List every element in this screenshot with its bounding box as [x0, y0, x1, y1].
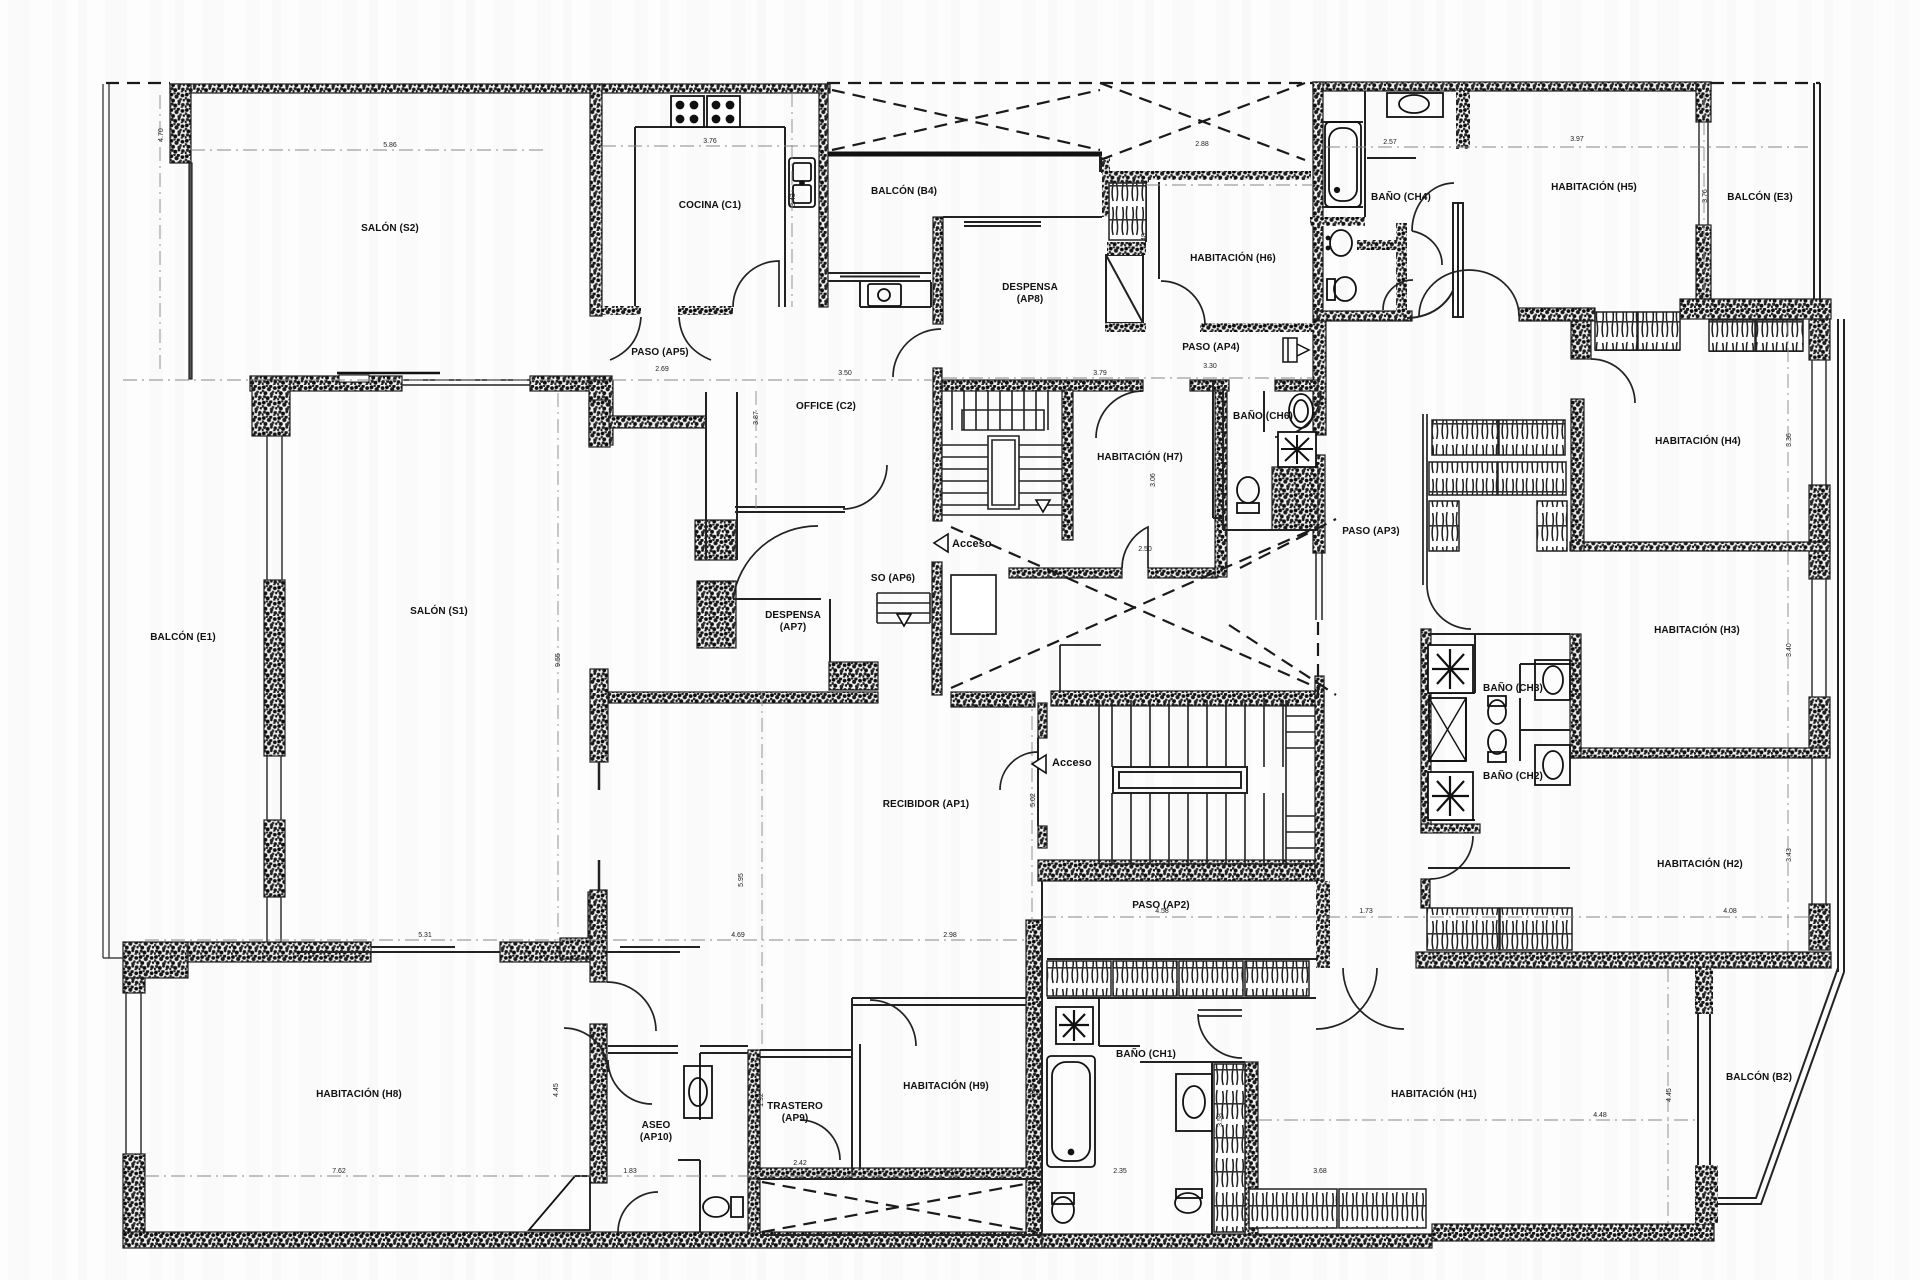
svg-text:4.69: 4.69 — [731, 932, 745, 939]
svg-text:HABITACIÓN (H1): HABITACIÓN (H1) — [1391, 1087, 1477, 1100]
svg-text:2.42: 2.42 — [793, 1160, 807, 1167]
svg-text:PASO (AP3): PASO (AP3) — [1342, 526, 1400, 537]
svg-text:4.48: 4.48 — [1593, 1112, 1607, 1119]
svg-text:2.65: 2.65 — [1030, 1083, 1037, 1097]
svg-text:3.68: 3.68 — [1313, 1168, 1327, 1175]
svg-text:Acceso: Acceso — [1052, 757, 1092, 769]
svg-text:7.62: 7.62 — [332, 1168, 346, 1175]
svg-text:1.73: 1.73 — [1359, 908, 1373, 915]
svg-text:3.06: 3.06 — [1150, 473, 1157, 487]
svg-text:3.79: 3.79 — [1093, 370, 1107, 377]
svg-text:BALCÓN (B4): BALCÓN (B4) — [871, 184, 937, 197]
svg-text:SALÓN (S2): SALÓN (S2) — [361, 221, 419, 234]
svg-text:2.88: 2.88 — [1195, 141, 1209, 148]
svg-text:HABITACIÓN (H6): HABITACIÓN (H6) — [1190, 251, 1276, 264]
svg-text:(AP10): (AP10) — [640, 1132, 672, 1143]
svg-text:5.31: 5.31 — [418, 932, 432, 939]
svg-text:3.30: 3.30 — [1203, 363, 1217, 370]
svg-text:3.58: 3.58 — [1217, 1113, 1224, 1127]
svg-text:9.55: 9.55 — [555, 653, 562, 667]
svg-text:3.43: 3.43 — [1786, 848, 1793, 862]
svg-text:Acceso: Acceso — [952, 538, 992, 550]
svg-text:2.69: 2.69 — [655, 366, 669, 373]
svg-text:HABITACIÓN (H4): HABITACIÓN (H4) — [1655, 434, 1741, 447]
svg-text:2.98: 2.98 — [943, 932, 957, 939]
svg-text:3.50: 3.50 — [838, 370, 852, 377]
svg-text:2.50: 2.50 — [1138, 546, 1152, 553]
svg-text:3.43: 3.43 — [790, 193, 797, 207]
svg-text:1.83: 1.83 — [623, 1168, 637, 1175]
svg-text:3.76: 3.76 — [1702, 189, 1709, 203]
svg-text:4.58: 4.58 — [1155, 908, 1169, 915]
svg-text:OFFICE (C2): OFFICE (C2) — [796, 401, 856, 412]
svg-text:3.40: 3.40 — [1786, 643, 1793, 657]
svg-text:3.87: 3.87 — [943, 1168, 957, 1175]
svg-text:3.36: 3.36 — [1786, 433, 1793, 447]
svg-text:HABITACIÓN (H2): HABITACIÓN (H2) — [1657, 857, 1743, 870]
svg-text:BALCÓN (E3): BALCÓN (E3) — [1727, 190, 1793, 203]
svg-text:PASO (AP4): PASO (AP4) — [1182, 342, 1240, 353]
svg-text:4.45: 4.45 — [1666, 1088, 1673, 1102]
svg-text:BALCÓN (B2): BALCÓN (B2) — [1726, 1070, 1792, 1083]
svg-text:BAÑO (CH2): BAÑO (CH2) — [1483, 769, 1543, 782]
svg-text:PASO (AP5): PASO (AP5) — [631, 347, 689, 358]
svg-text:BAÑO (CH6): BAÑO (CH6) — [1233, 409, 1293, 422]
svg-text:SO (AP6): SO (AP6) — [871, 573, 915, 584]
svg-text:SALÓN (S1): SALÓN (S1) — [410, 604, 468, 617]
svg-text:5.02: 5.02 — [1030, 793, 1037, 807]
svg-text:2.35: 2.35 — [1113, 1168, 1127, 1175]
svg-text:ASEO: ASEO — [642, 1120, 671, 1131]
svg-text:BAÑO (CH3): BAÑO (CH3) — [1483, 681, 1543, 694]
svg-text:(AP9): (AP9) — [782, 1113, 809, 1124]
svg-text:TRASTERO: TRASTERO — [767, 1101, 823, 1112]
svg-text:BALCÓN (E1): BALCÓN (E1) — [150, 630, 216, 643]
svg-text:2.57: 2.57 — [1383, 139, 1397, 146]
svg-text:BAÑO (CH4): BAÑO (CH4) — [1371, 190, 1431, 203]
svg-text:DESPENSA: DESPENSA — [765, 610, 821, 621]
svg-text:BAÑO (CH1): BAÑO (CH1) — [1116, 1047, 1176, 1060]
svg-text:HABITACIÓN (H7): HABITACIÓN (H7) — [1097, 450, 1183, 463]
svg-text:5.95: 5.95 — [738, 873, 745, 887]
svg-text:4.08: 4.08 — [1723, 908, 1737, 915]
svg-text:HABITACIÓN (H3): HABITACIÓN (H3) — [1654, 623, 1740, 636]
svg-text:HABITACIÓN (H8): HABITACIÓN (H8) — [316, 1087, 402, 1100]
svg-text:4.45: 4.45 — [553, 1083, 560, 1097]
svg-text:3.97: 3.97 — [1570, 136, 1584, 143]
svg-text:(AP7): (AP7) — [780, 622, 807, 633]
svg-text:HABITACIÓN (H9): HABITACIÓN (H9) — [903, 1079, 989, 1092]
svg-text:4.70: 4.70 — [158, 128, 165, 142]
svg-text:2.48: 2.48 — [1141, 233, 1148, 247]
svg-text:1.92: 1.92 — [758, 1093, 765, 1107]
svg-text:DESPENSA: DESPENSA — [1002, 282, 1058, 293]
svg-text:3.87: 3.87 — [753, 411, 760, 425]
svg-text:RECIBIDOR (AP1): RECIBIDOR (AP1) — [883, 799, 970, 810]
svg-text:(AP8): (AP8) — [1017, 294, 1044, 305]
svg-text:HABITACIÓN (H5): HABITACIÓN (H5) — [1551, 180, 1637, 193]
svg-text:5.86: 5.86 — [383, 142, 397, 149]
svg-text:3.76: 3.76 — [703, 138, 717, 145]
svg-text:COCINA (C1): COCINA (C1) — [679, 200, 741, 211]
